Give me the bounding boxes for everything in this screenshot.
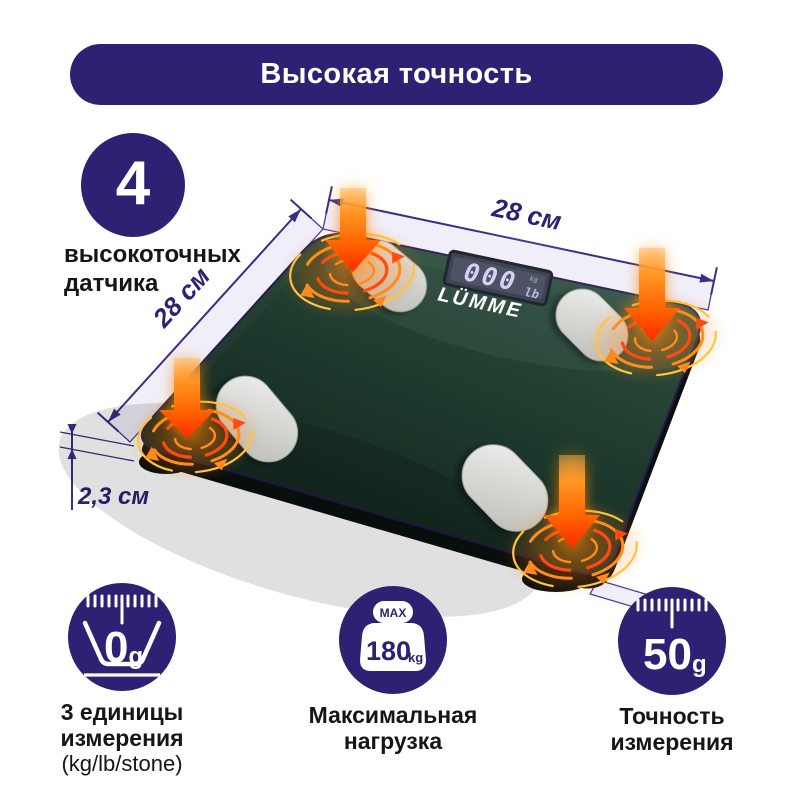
feature-units-caption-2: измерения bbox=[12, 725, 232, 751]
accuracy-icon-value: 50 bbox=[643, 630, 692, 679]
max-load-icon-label: MAX bbox=[380, 606, 407, 620]
max-load-icon-value: 180 bbox=[366, 636, 411, 666]
accuracy-icon-unit: g bbox=[692, 651, 707, 678]
units-icon-value: 0 bbox=[104, 623, 128, 672]
units-icon-unit: g bbox=[128, 643, 143, 670]
feature-units-caption-1: 3 единицы bbox=[12, 699, 232, 725]
accuracy-ruler-icon: 50g bbox=[618, 587, 726, 695]
feature-accuracy-caption-1: Точность bbox=[562, 703, 782, 729]
feature-accuracy-caption-2: измерения bbox=[562, 729, 782, 755]
max-load-icon-unit: kg bbox=[408, 650, 423, 665]
lcd-unit-lb: lb bbox=[523, 285, 540, 302]
units-scale-icon: 0g bbox=[68, 583, 176, 691]
feature-units-caption-3: (kg/lb/stone) bbox=[12, 751, 232, 777]
max-load-weight-icon: MAX 180 kg bbox=[339, 586, 447, 694]
feature-accuracy: 50g Точность измерения bbox=[562, 587, 782, 755]
feature-max-load-caption-1: Максимальная bbox=[283, 702, 503, 728]
feature-units: 0g 3 единицы измерения (kg/lb/stone) bbox=[12, 583, 232, 777]
feature-max-load-caption-2: нагрузка bbox=[283, 728, 503, 754]
dimension-width-top-label: 28 см bbox=[489, 192, 565, 236]
feature-max-load: MAX 180 kg Максимальная нагрузка bbox=[283, 586, 503, 754]
